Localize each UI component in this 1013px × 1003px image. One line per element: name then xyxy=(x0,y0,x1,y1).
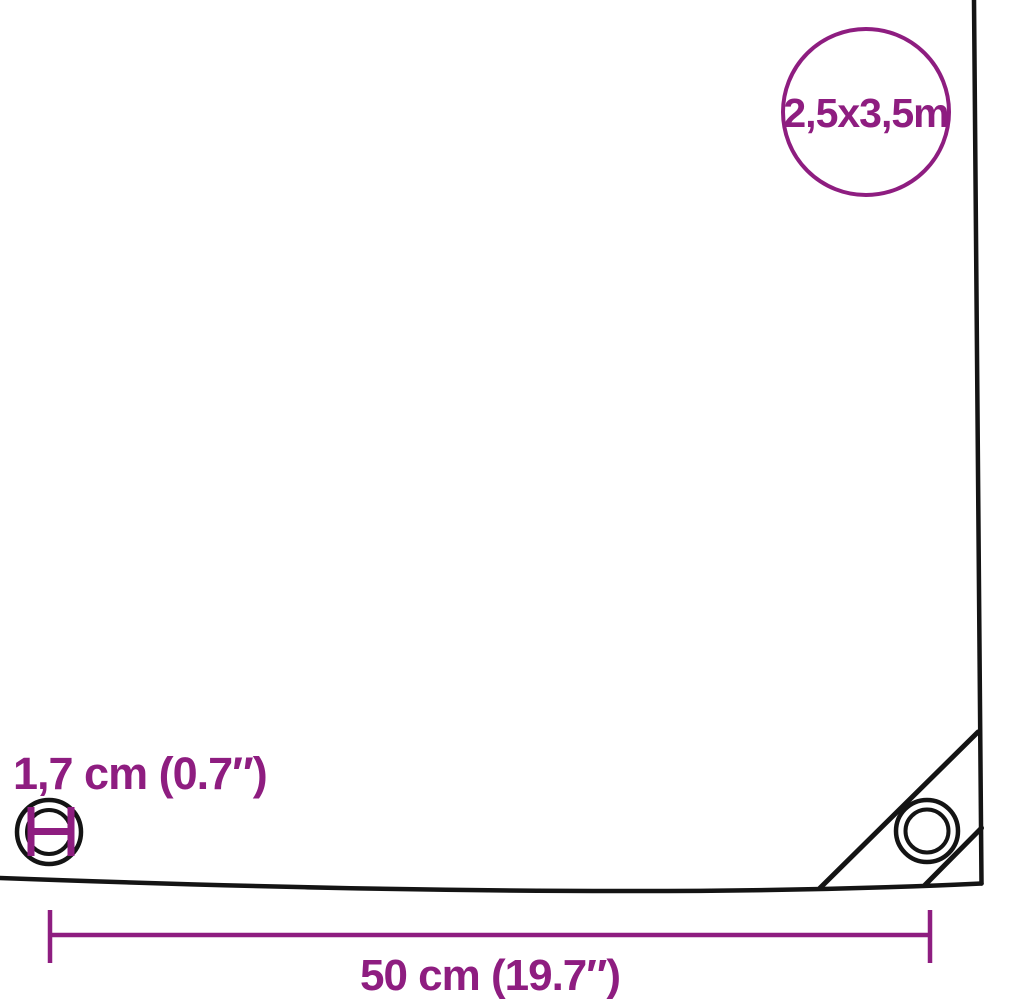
eyelet-with-diameter-marker-icon xyxy=(17,800,81,864)
tarp-right-edge xyxy=(974,0,982,884)
eyelet-diameter-label: 1,7 cm (0.7″) xyxy=(13,748,267,799)
width-dimension-line: 50 cm (19.7″) xyxy=(50,910,930,1000)
corner-eyelet-inner-ring xyxy=(906,810,949,853)
corner-patch-inner-seam xyxy=(925,828,982,885)
size-label: 2,5x3,5m xyxy=(783,90,948,136)
tarp-bottom-edge xyxy=(0,878,982,891)
product-dimension-diagram: 2,5x3,5m 1,7 cm (0.7″) 50 cm (19.7″) xyxy=(0,0,1013,1003)
corner-eyelet-icon xyxy=(896,800,958,862)
size-badge: 2,5x3,5m xyxy=(783,29,949,195)
corner-patch-outer-seam xyxy=(820,732,978,888)
corner-reinforcement-patch xyxy=(820,732,982,888)
eyelet-spacing-label: 50 cm (19.7″) xyxy=(360,951,620,1000)
tarpaulin-diagram-canvas: 2,5x3,5m 1,7 cm (0.7″) 50 cm (19.7″) xyxy=(0,0,1013,1003)
